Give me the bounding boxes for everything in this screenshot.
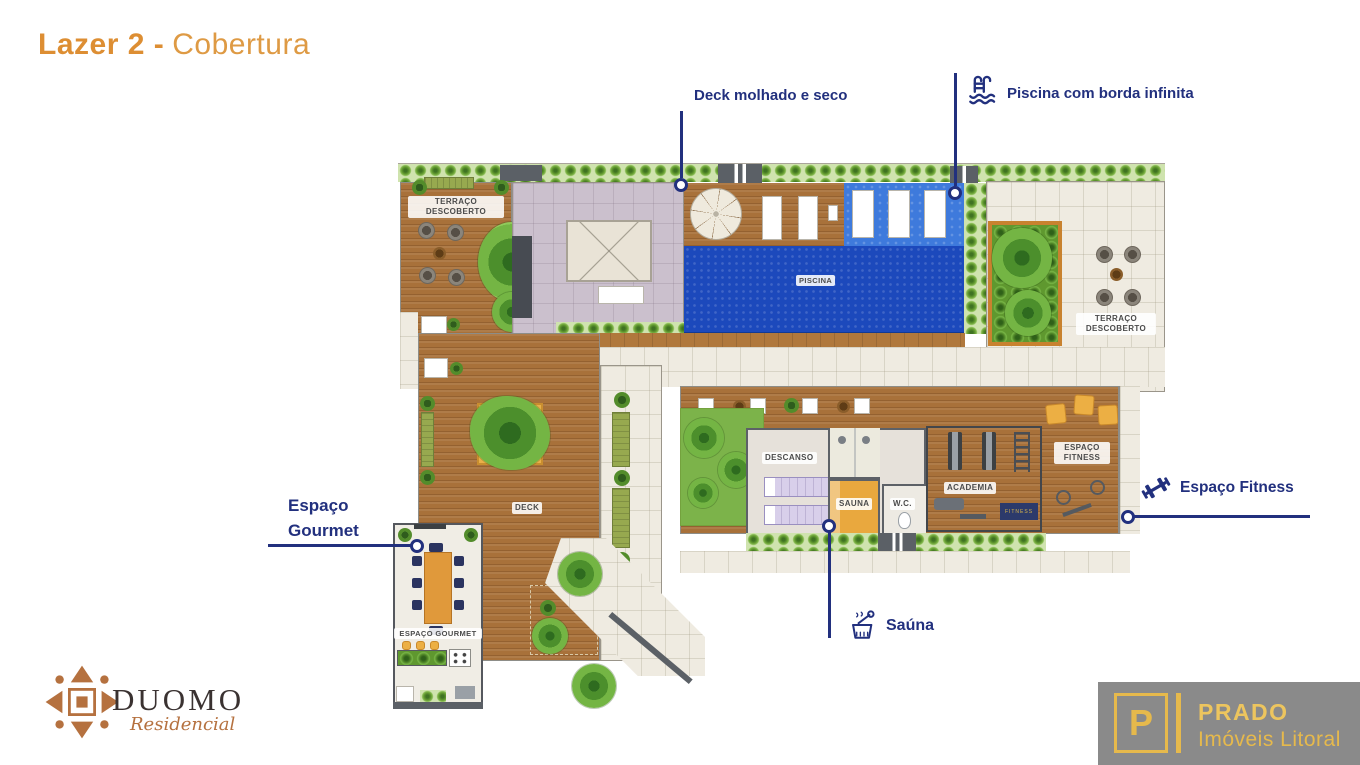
wet-deck-lounger bbox=[852, 190, 874, 238]
dining-chair bbox=[412, 556, 422, 566]
sauna-bucket-icon bbox=[844, 605, 884, 645]
counter-stool bbox=[416, 641, 425, 650]
walkway bbox=[596, 347, 1165, 387]
pergola bbox=[566, 220, 652, 282]
sauna-callout-marker bbox=[822, 519, 836, 533]
plant-icon bbox=[464, 528, 478, 542]
plant-icon bbox=[540, 600, 556, 616]
terraco-left-label: TERRAÇO DESCOBERTO bbox=[408, 196, 504, 218]
wet-deck-lounger bbox=[888, 190, 910, 238]
path-bench bbox=[612, 412, 630, 467]
espaco-gourmet-label: ESPAÇO GOURMET bbox=[394, 628, 482, 639]
pool-hedge bbox=[964, 183, 986, 334]
planting-strip bbox=[420, 690, 446, 702]
gourmet-counter bbox=[397, 650, 447, 666]
fitness-callout-line bbox=[1134, 515, 1310, 518]
lounge-chair bbox=[598, 286, 644, 304]
round-seat bbox=[418, 222, 435, 239]
fitness-callout-marker bbox=[1121, 510, 1135, 524]
round-seat bbox=[419, 267, 436, 284]
plant-icon bbox=[614, 392, 630, 408]
duomo-logo: DUOMO Residencial bbox=[40, 658, 300, 750]
plant-icon bbox=[494, 180, 509, 195]
sauna-label: SAUNA bbox=[836, 498, 872, 510]
sun-lounger bbox=[762, 196, 782, 240]
wall-segment bbox=[500, 165, 542, 181]
counter-stool bbox=[402, 641, 411, 650]
prado-logo-bar bbox=[1176, 693, 1181, 753]
pool-callout-marker bbox=[948, 186, 962, 200]
fire-pit bbox=[433, 247, 446, 260]
dining-chair bbox=[429, 543, 443, 552]
exercise-bike bbox=[1090, 480, 1105, 495]
fire-pit bbox=[1110, 268, 1123, 281]
round-seat bbox=[1096, 246, 1113, 263]
walkway bbox=[680, 551, 1130, 573]
plant-icon bbox=[450, 362, 463, 375]
terrace-step bbox=[400, 312, 418, 389]
sauna-callout-label: Saúna bbox=[886, 616, 934, 637]
weight-rack bbox=[1014, 432, 1030, 472]
fitness-mat: FITNESS bbox=[1000, 503, 1038, 520]
deck-chair bbox=[802, 398, 818, 414]
wall-segment bbox=[393, 702, 483, 709]
pouf-seat bbox=[1045, 403, 1067, 425]
palm-tree bbox=[992, 228, 1052, 288]
descanso-label: DESCANSO bbox=[762, 452, 817, 464]
dumbbell-icon bbox=[1138, 470, 1174, 506]
duomo-subtitle: Residencial bbox=[130, 714, 235, 735]
deck-chair bbox=[854, 398, 870, 414]
sun-lounger bbox=[798, 196, 818, 240]
prado-monogram-box: P bbox=[1114, 693, 1168, 753]
umbrella-icon bbox=[690, 188, 742, 240]
gym-bench bbox=[934, 498, 964, 510]
prado-subtitle: Imóveis Litoral bbox=[1198, 728, 1341, 752]
dining-table bbox=[424, 552, 452, 624]
side-table bbox=[828, 205, 838, 221]
relax-lounger bbox=[764, 477, 836, 497]
deck-callout-label: Deck molhado e seco bbox=[694, 86, 847, 106]
prado-monogram: P bbox=[1129, 702, 1153, 744]
path-bench bbox=[612, 488, 630, 548]
tv-icon bbox=[414, 524, 446, 529]
plant-icon bbox=[614, 470, 630, 486]
swimming-pool bbox=[684, 246, 964, 334]
deck-bench bbox=[421, 412, 434, 467]
duomo-name: DUOMO bbox=[112, 682, 244, 718]
palm-tree bbox=[1005, 290, 1051, 336]
cabinet bbox=[396, 686, 414, 702]
garden-bench bbox=[424, 177, 474, 189]
deck-callout-line bbox=[680, 111, 683, 178]
gourmet-callout-label: Espaço Gourmet bbox=[288, 494, 359, 543]
dining-chair bbox=[454, 578, 464, 588]
plant-pot bbox=[837, 400, 850, 413]
barbell bbox=[960, 514, 986, 519]
cabinet bbox=[455, 686, 475, 699]
plant-icon bbox=[784, 398, 799, 413]
gourmet-callout-line bbox=[268, 544, 416, 547]
shower-head-icon bbox=[838, 436, 846, 444]
floorplan-page: Lazer 2 -Cobertura TERRAÇO DESCOBERTO bbox=[0, 0, 1360, 765]
counter-stool bbox=[430, 641, 439, 650]
pouf-seat bbox=[1097, 404, 1118, 425]
dining-chair bbox=[454, 556, 464, 566]
round-seat bbox=[448, 269, 465, 286]
pool-ladder-icon bbox=[964, 72, 1000, 108]
round-seat bbox=[447, 224, 464, 241]
terraco-right-label: TERRAÇO DESCOBERTO bbox=[1076, 313, 1156, 335]
pool-callout-label: Piscina com borda infinita bbox=[1007, 84, 1194, 104]
pool-callout-line bbox=[954, 73, 957, 186]
service-door bbox=[718, 164, 762, 183]
espaco-fitness-label: ESPAÇO FITNESS bbox=[1054, 442, 1110, 464]
palm-tree bbox=[572, 664, 616, 708]
palm-tree bbox=[532, 618, 568, 654]
round-seat bbox=[1124, 289, 1141, 306]
toilet-icon bbox=[898, 512, 911, 529]
plant-icon bbox=[412, 180, 427, 195]
shower-stalls bbox=[828, 428, 880, 479]
prado-logo: P PRADO Imóveis Litoral bbox=[1098, 682, 1360, 765]
shower-head-icon bbox=[862, 436, 870, 444]
treadmill bbox=[982, 432, 996, 470]
palm-tree bbox=[688, 478, 718, 508]
palm-tree bbox=[684, 418, 724, 458]
fitness-callout-label: Espaço Fitness bbox=[1180, 478, 1294, 498]
cooktop-icon bbox=[449, 649, 471, 667]
round-seat bbox=[1124, 246, 1141, 263]
plant-icon bbox=[420, 396, 435, 411]
academia-label: ACADEMIA bbox=[944, 482, 996, 494]
plant-icon bbox=[447, 318, 460, 331]
pouf-seat bbox=[1073, 394, 1094, 415]
dining-chair bbox=[454, 600, 464, 610]
treadmill bbox=[948, 432, 962, 470]
dining-chair bbox=[412, 578, 422, 588]
deck-counter bbox=[512, 236, 532, 318]
piscina-label: PISCINA bbox=[796, 275, 835, 286]
palm-tree bbox=[558, 552, 602, 596]
plant-icon bbox=[398, 528, 412, 542]
deck-callout-marker bbox=[674, 178, 688, 192]
wet-deck-lounger bbox=[924, 190, 946, 238]
sauna-callout-line bbox=[828, 532, 831, 638]
prado-name: PRADO bbox=[1198, 699, 1289, 726]
round-seat bbox=[1096, 289, 1113, 306]
gourmet-callout-marker bbox=[410, 539, 424, 553]
plant-icon bbox=[420, 470, 435, 485]
wc-label: W.C. bbox=[890, 498, 915, 510]
exercise-bike bbox=[1056, 490, 1071, 505]
dining-chair bbox=[412, 600, 422, 610]
seat-cushion bbox=[424, 358, 448, 378]
planter-tree bbox=[470, 396, 550, 470]
deck-label: DECK bbox=[512, 502, 542, 514]
